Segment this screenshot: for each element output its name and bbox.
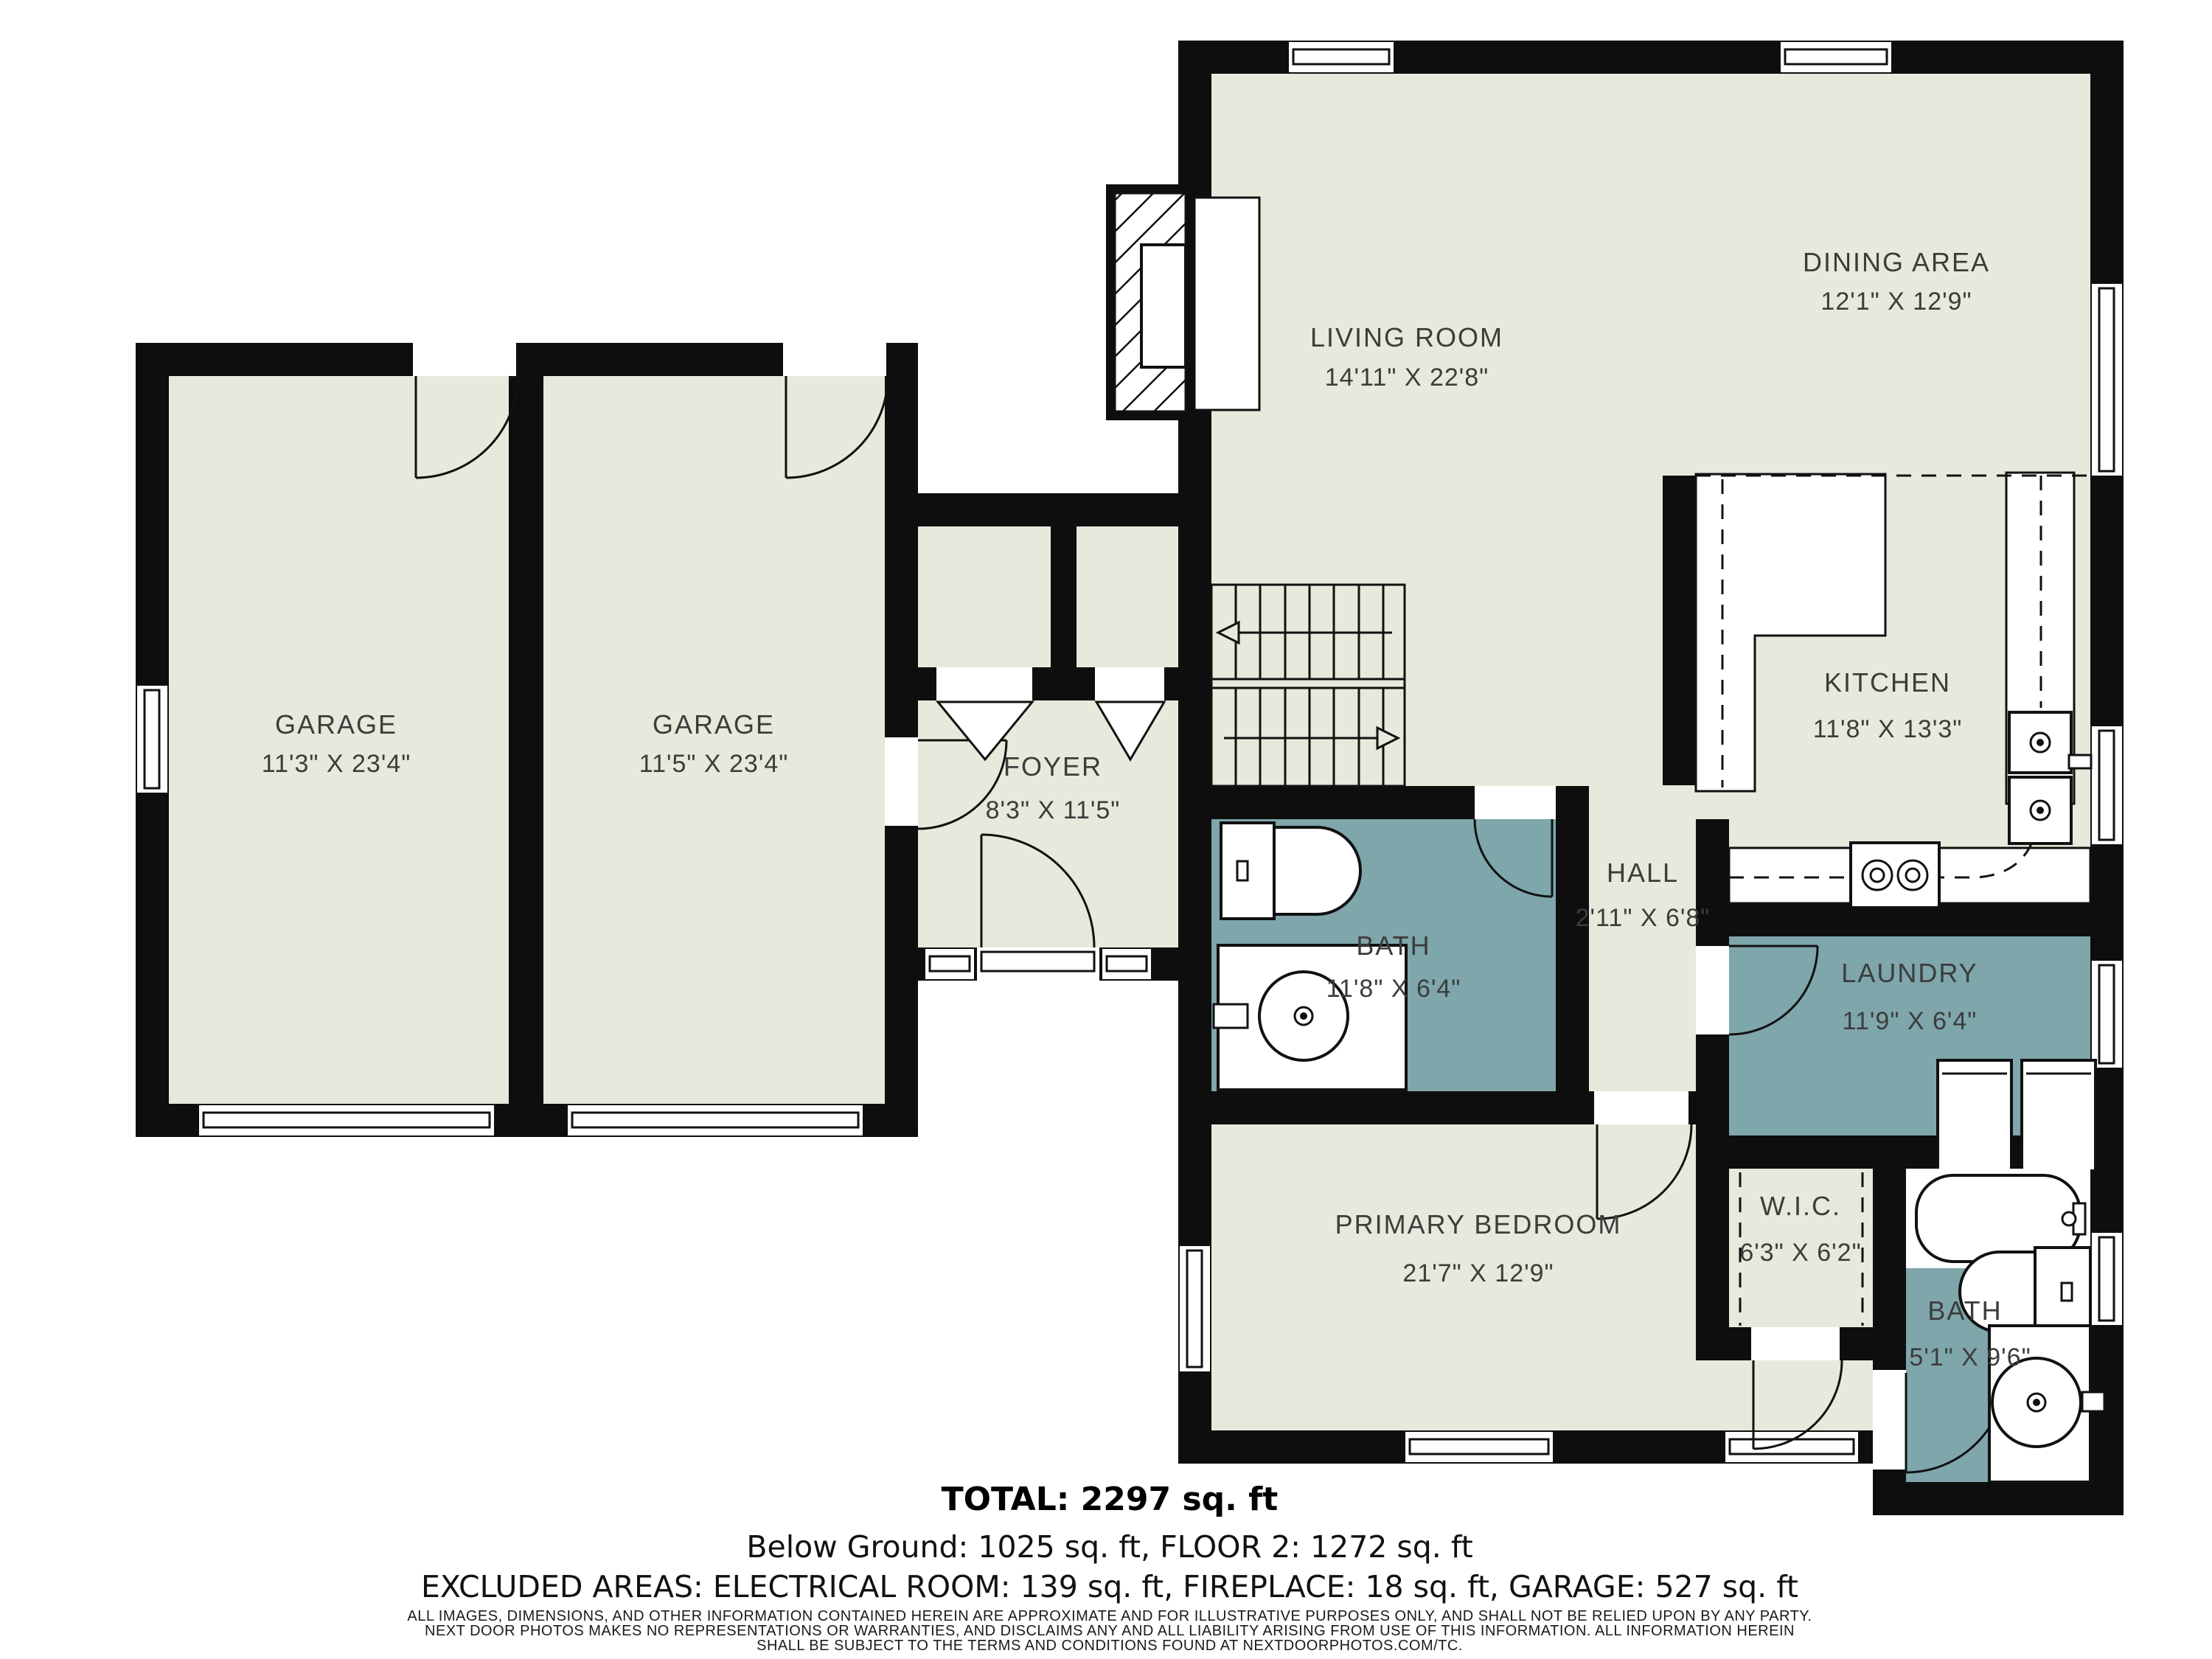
kitchen-stove [1851, 843, 1939, 908]
label-foyer: FOYER [1004, 751, 1102, 782]
floor-plan: GARAGE 11'3" X 23'4" GARAGE 11'5" X 23'4… [0, 0, 2212, 1659]
garage-2-overhead-door [572, 1113, 858, 1127]
dims-garage-1: 11'3" X 23'4" [262, 750, 411, 778]
garage-1-overhead-door [204, 1113, 490, 1127]
dims-primary-bedroom: 21'7" X 12'9" [1402, 1259, 1554, 1287]
garage-entry-opening [885, 737, 918, 826]
label-laundry: LAUNDRY [1841, 958, 1978, 988]
disclaimer-line-2: NEXT DOOR PHOTOS MAKES NO REPRESENTATION… [425, 1623, 1795, 1639]
label-hall: HALL [1607, 858, 1679, 888]
dining-window-right [2099, 288, 2114, 471]
garage-1-door-opening [413, 343, 516, 376]
dims-bath-2: 5'1" X 9'6" [1909, 1343, 2031, 1371]
dims-kitchen: 11'8" X 13'3" [1813, 715, 1963, 743]
bedroom-window-left [1187, 1251, 1202, 1367]
bath-main-door-opening [1475, 786, 1556, 819]
bedroom-window-bottom [1410, 1439, 1548, 1454]
disclaimer-line-3: SHALL BE SUBJECT TO THE TERMS AND CONDIT… [757, 1638, 1463, 1654]
footer: TOTAL: 2297 sq. ft Below Ground: 1025 sq… [407, 1481, 1812, 1654]
label-bath-2: BATH [1927, 1295, 2002, 1326]
dining-window-top [1785, 49, 1887, 64]
kitchen-faucet-icon [2069, 755, 2091, 768]
label-primary-bedroom: PRIMARY BEDROOM [1335, 1209, 1622, 1239]
label-dining-area: DINING AREA [1803, 247, 1990, 277]
total-area-text: TOTAL: 2297 sq. ft [942, 1481, 1279, 1518]
room-hall-floor [1589, 786, 1696, 1091]
label-kitchen: KITCHEN [1824, 667, 1951, 698]
foyer-window-left [930, 956, 970, 971]
label-living-room: LIVING ROOM [1310, 322, 1503, 352]
room-garage-2-floor [543, 376, 885, 1104]
kitchen-window [2099, 731, 2114, 840]
dims-foyer: 8'3" X 11'5" [986, 796, 1121, 824]
label-garage-1: GARAGE [275, 709, 397, 740]
bedroom-door-opening [1594, 1091, 1688, 1124]
disclaimer-line-1: ALL IMAGES, DIMENSIONS, AND OTHER INFORM… [407, 1608, 1812, 1624]
washer-icon [1938, 1060, 2011, 1171]
toilet-icon [1221, 823, 1360, 919]
dims-dining-area: 12'1" X 12'9" [1820, 288, 1972, 316]
dims-wic: 6'3" X 6'2" [1739, 1239, 1861, 1267]
foyer-window-right [1107, 956, 1147, 971]
closet-1-opening [936, 667, 1032, 700]
staircase [1211, 585, 1405, 786]
vanity-sink-icon [1214, 945, 1406, 1090]
dims-garage-2: 11'5" X 23'4" [639, 750, 789, 778]
floor-areas-text: Below Ground: 1025 sq. ft, FLOOR 2: 1272… [746, 1529, 1472, 1565]
label-wic: W.I.C. [1760, 1191, 1841, 1221]
dims-hall: 2'11" X 6'8" [1576, 904, 1711, 932]
fireplace [1106, 184, 1259, 420]
bath-2-window [2099, 1237, 2114, 1321]
room-garage-1-floor [169, 376, 509, 1104]
closet-2-opening [1095, 667, 1164, 700]
bath-2-door-opening [1873, 1370, 1906, 1470]
dims-bath-main: 11'8" X 6'4" [1326, 975, 1461, 1003]
excluded-areas-text: EXCLUDED AREAS: ELECTRICAL ROOM: 139 sq.… [421, 1569, 1798, 1604]
garage-1-window [145, 690, 159, 788]
living-room-window [1293, 49, 1389, 64]
vestibule-window-bottom [1730, 1439, 1854, 1454]
laundry-window [2099, 965, 2114, 1063]
dims-laundry: 11'9" X 6'4" [1843, 1007, 1978, 1035]
fireplace-hearth [1194, 198, 1259, 410]
room-bedroom-vestibule-floor [1696, 1360, 1873, 1430]
label-garage-2: GARAGE [653, 709, 775, 740]
fireplace-firebox [1141, 245, 1186, 367]
dims-living-room: 14'11" X 22'8" [1325, 364, 1489, 392]
laundry-door-opening [1696, 946, 1729, 1034]
garage-2-door-opening [783, 343, 886, 376]
label-bath-main: BATH [1356, 931, 1430, 961]
dryer-icon [2022, 1060, 2096, 1171]
wic-door-opening [1751, 1327, 1840, 1360]
